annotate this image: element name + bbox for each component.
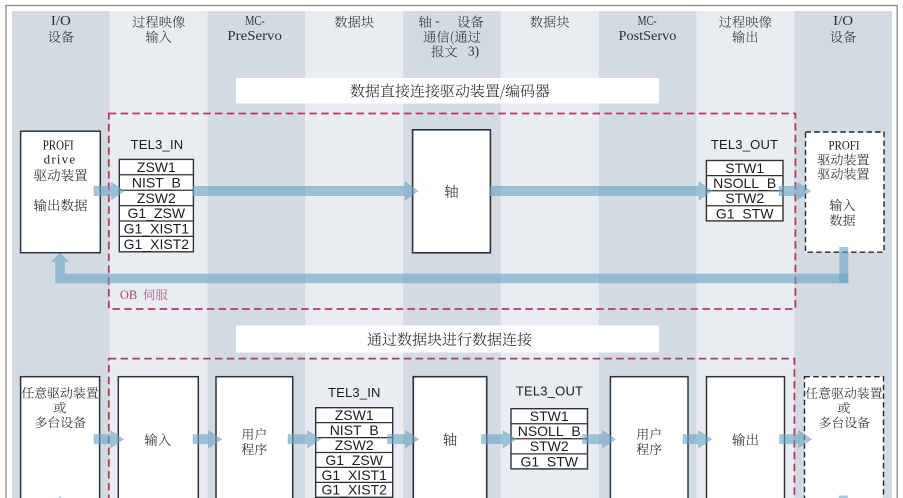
svg-text:TEL3_OUT: TEL3_OUT <box>711 137 778 152</box>
svg-text:TEL3_IN: TEL3_IN <box>131 137 184 152</box>
svg-text:MC-: MC- <box>638 13 657 28</box>
svg-text:STW1: STW1 <box>530 408 569 424</box>
svg-text:PostServo: PostServo <box>619 28 677 43</box>
svg-text:G1_XIST1: G1_XIST1 <box>124 221 190 237</box>
svg-text:STW2: STW2 <box>530 438 569 454</box>
svg-text:NIST_B: NIST_B <box>330 422 379 438</box>
svg-text:-: - <box>435 13 439 28</box>
svg-text:G1_XIST2: G1_XIST2 <box>124 236 190 252</box>
svg-text:NSOLL_B: NSOLL_B <box>713 175 776 191</box>
svg-text:drive: drive <box>44 152 77 167</box>
svg-text:STW2: STW2 <box>725 190 764 206</box>
svg-text:OB: OB <box>120 288 137 302</box>
svg-text:PreServo: PreServo <box>227 28 282 43</box>
svg-text:3): 3) <box>468 43 479 58</box>
svg-text:ZSW2: ZSW2 <box>335 437 374 453</box>
svg-text:G1_XIST1: G1_XIST1 <box>322 467 388 483</box>
svg-text:I/O: I/O <box>51 13 71 28</box>
svg-text:G1_STW: G1_STW <box>716 205 774 221</box>
svg-text:PROFI: PROFI <box>43 137 74 152</box>
svg-text:I/O: I/O <box>833 13 853 28</box>
svg-text:NIST_B: NIST_B <box>132 174 181 190</box>
svg-text:G1_ZSW: G1_ZSW <box>128 205 186 221</box>
svg-text:ZSW2: ZSW2 <box>137 190 176 206</box>
svg-text:TEL3_IN: TEL3_IN <box>328 385 381 400</box>
svg-text:TEL3_OUT: TEL3_OUT <box>516 384 583 399</box>
svg-text:G1_ZSW: G1_ZSW <box>325 452 383 468</box>
svg-text:MC-: MC- <box>245 13 265 28</box>
svg-text:G1_XIST2: G1_XIST2 <box>322 482 388 498</box>
svg-text:NSOLL_B: NSOLL_B <box>518 423 581 439</box>
svg-text:STW1: STW1 <box>725 160 764 176</box>
svg-text:PROFI: PROFI <box>829 138 860 153</box>
svg-text:ZSW1: ZSW1 <box>137 159 176 175</box>
svg-text:G1_STW: G1_STW <box>520 453 578 469</box>
svg-text:ZSW1: ZSW1 <box>335 407 374 423</box>
